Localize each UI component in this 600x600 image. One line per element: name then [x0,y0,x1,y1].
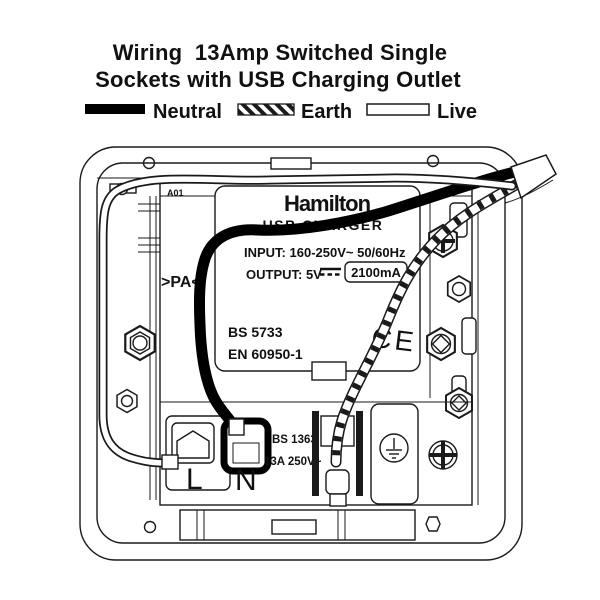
output-spec: OUTPUT: 5V [246,267,322,282]
screw-left-lower [117,390,137,413]
brand-logo: Hamilton [284,191,371,216]
bottom-band-slot [272,520,316,534]
legend: Neutral Earth Live [85,101,477,123]
terminal-neutral-label: N [235,464,257,497]
earth-symbol-panel [371,404,418,504]
screw-right-mid [427,328,455,360]
input-spec: INPUT: 160-250V~ 50/60Hz [244,245,406,260]
standard-bs5733: BS 5733 [228,324,283,340]
screw-right-lower-mid [446,388,472,418]
wiring-diagram-page: Wiring 13Amp Switched Single Sockets wit… [0,0,600,600]
plate-top-clip [271,158,311,169]
legend-label-earth: Earth [301,101,352,123]
usb-module-bottom-notch [312,362,346,380]
legend-label-live: Live [437,101,477,123]
standard-en60950: EN 60950-1 [228,346,303,362]
page-title: Wiring 13Amp Switched Single Sockets wit… [95,40,461,92]
terminal-live-label: L [186,463,203,496]
neutral-wire-tip [229,419,244,435]
wiring-diagram: Wiring 13Amp Switched Single Sockets wit… [0,0,600,600]
legend-label-neutral: Neutral [153,101,222,123]
legend-swatch-live [367,104,429,115]
screw-right-upper-mid [448,276,471,302]
legend-swatch-neutral [85,104,145,114]
terminal-screw [429,441,457,469]
bottom-band [180,510,415,540]
marking-a01: A01 [167,188,184,198]
output-value: 2100mA [351,265,401,280]
live-wire-tip [162,455,178,469]
title-line-1: Wiring 13Amp Switched Single [113,40,447,65]
title-line-2: Sockets with USB Charging Outlet [95,67,461,92]
screw-left-mid [125,326,154,360]
legend-swatch-earth [238,104,294,115]
socket-standard: BS 1363 [272,434,317,446]
